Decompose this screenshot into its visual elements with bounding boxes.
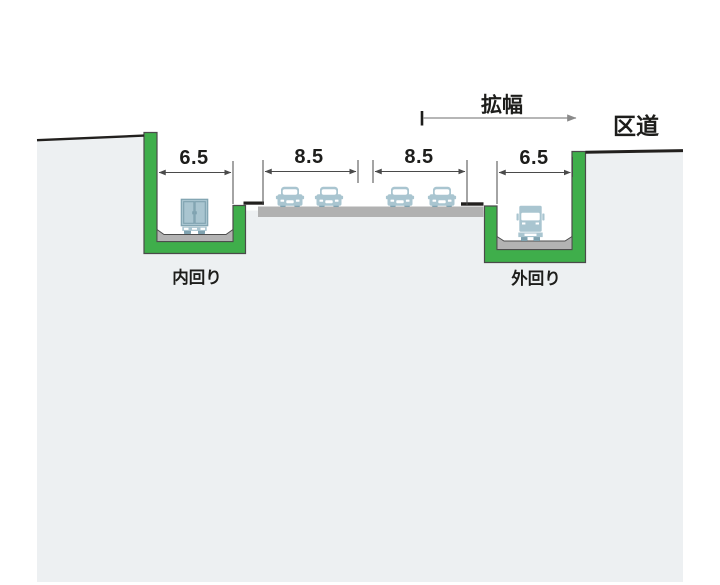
dimension-label-inner-trench: 6.5 — [179, 147, 208, 169]
truck-rear-view-icon — [181, 199, 207, 234]
car-front-view-icon — [386, 187, 414, 207]
center-road-deck — [258, 207, 484, 218]
car-front-view-icon — [315, 187, 343, 207]
dimension-outer-trench: 6.5 — [497, 147, 573, 204]
widening-annotation: 拡幅 — [422, 93, 576, 126]
inner-loop-label: 内回り — [172, 267, 222, 287]
dimension-label-left-roadway: 8.5 — [294, 146, 323, 168]
car-front-view-icon — [428, 187, 456, 207]
ward-road-label: 区道 — [613, 113, 659, 139]
median-surface-segment-left — [244, 202, 265, 205]
dimension-label-outer-trench: 6.5 — [519, 147, 548, 169]
outer-loop-label: 外回り — [511, 268, 561, 288]
median-surface-segment-right — [461, 202, 484, 205]
right-ground-surface-line — [586, 151, 684, 153]
cross-section-canvas: 6.5 8.5 8.5 6.5 拡幅 区道 内回り 外回り — [0, 0, 720, 585]
dimension-inner-trench: 6.5 — [157, 147, 233, 204]
inner-trench-floor — [157, 230, 233, 242]
widening-label: 拡幅 — [481, 93, 523, 117]
road-cross-section-diagram: 6.5 8.5 8.5 6.5 拡幅 区道 内回り 外回り — [0, 0, 720, 585]
car-front-view-icon — [276, 187, 304, 207]
dimension-label-right-roadway: 8.5 — [404, 146, 433, 168]
truck-front-view-icon — [517, 206, 545, 241]
